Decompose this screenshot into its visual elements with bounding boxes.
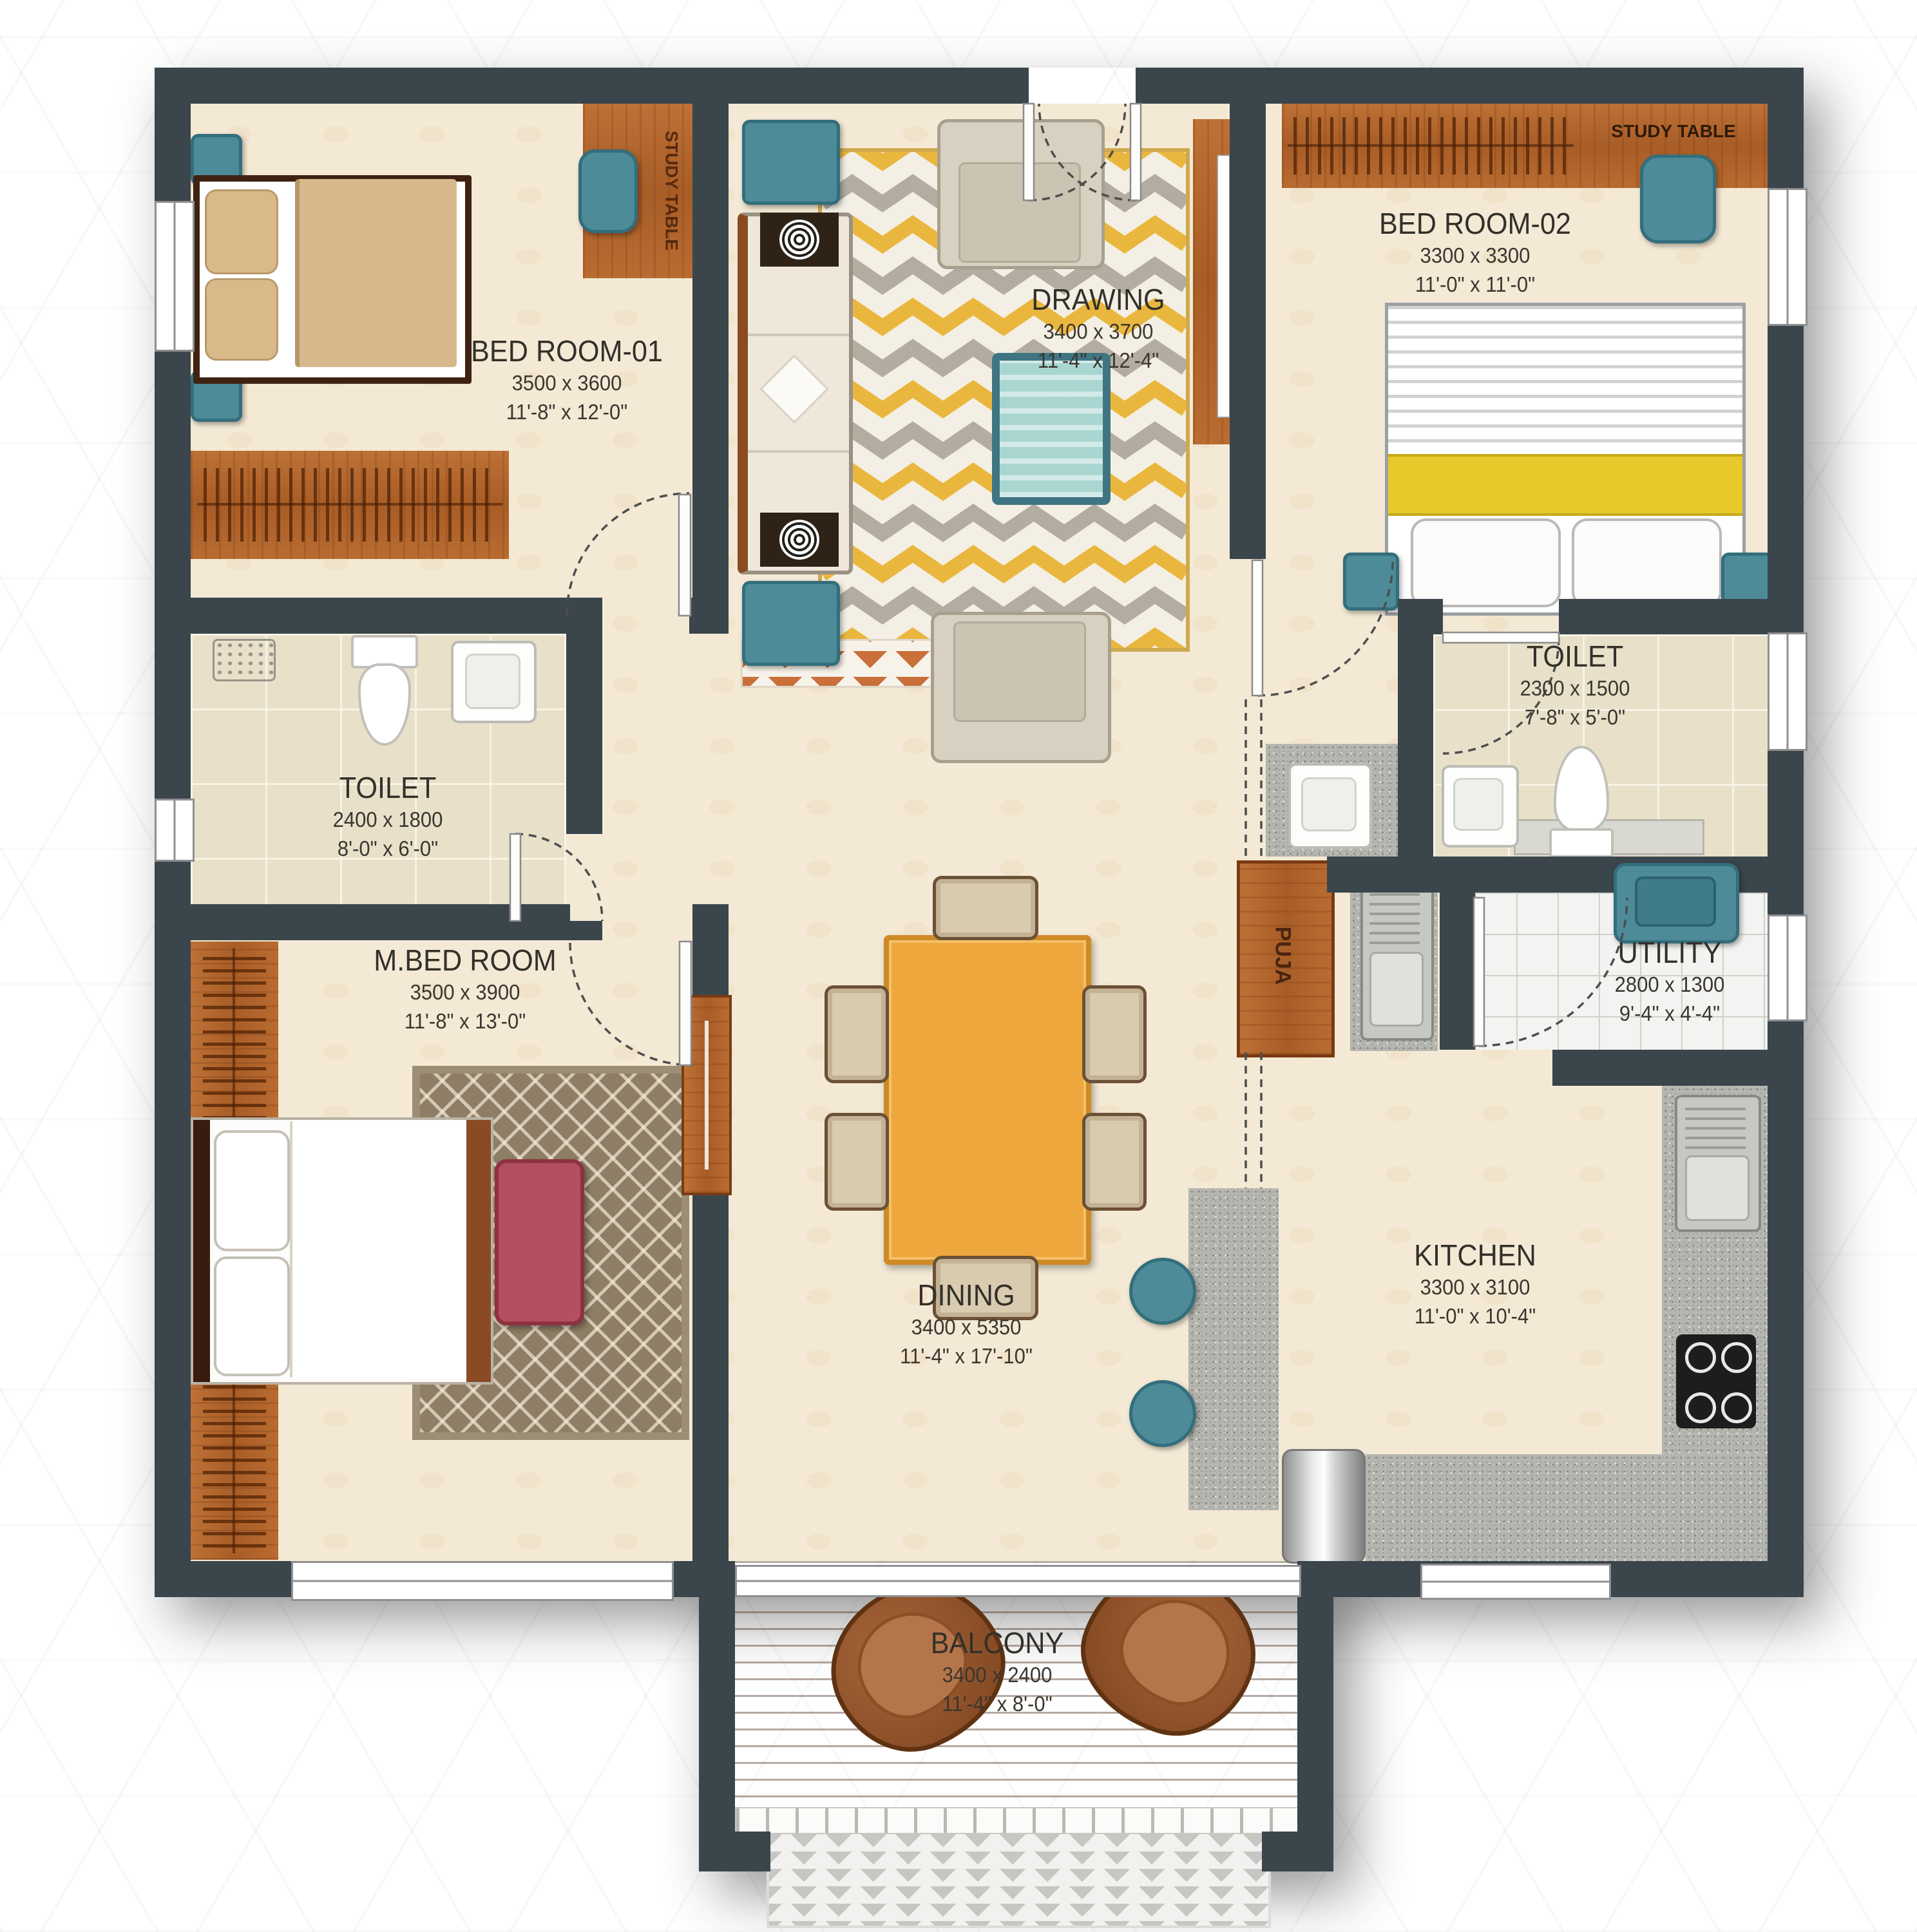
- burner-icon: [1721, 1392, 1752, 1423]
- room-label-dining: DINING 3400 x 5350 11'-4" x 17'-10": [900, 1278, 1033, 1370]
- headboard: [193, 1120, 210, 1382]
- water-cylinder: [1282, 1449, 1366, 1564]
- room-dim-mm: 2800 x 1300: [1615, 971, 1725, 999]
- room-name: UTILITY: [1615, 935, 1725, 971]
- window: [155, 799, 195, 862]
- room-dim-mm: 3400 x 5350: [900, 1313, 1033, 1342]
- sink-basin: [1453, 778, 1503, 831]
- study-table-label-bedroom2: STUDY TABLE: [1611, 121, 1735, 142]
- drawing-armchair-top: [937, 119, 1105, 269]
- wall-segment: [1230, 68, 1266, 559]
- room-name: DINING: [900, 1278, 1033, 1313]
- washing-machine: [1614, 863, 1739, 943]
- pillow: [205, 189, 278, 274]
- window: [1420, 1564, 1611, 1600]
- room-label-toilet1: TOILET 2400 x 1800 8'-0" x 6'-0": [333, 770, 443, 863]
- wall-segment: [566, 598, 602, 834]
- room-name: BED ROOM-02: [1379, 206, 1571, 241]
- kitchen-wash-sink: [1360, 873, 1434, 1041]
- room-dim-mm: 3400 x 3700: [1031, 317, 1165, 346]
- wash-niche-basin: [1288, 763, 1372, 849]
- machine-drum: [1635, 876, 1716, 927]
- sink-basin: [465, 654, 520, 709]
- room-dim-ft: 7'-8" x 5'-0": [1520, 703, 1630, 732]
- kitchen-sink: [1675, 1095, 1761, 1232]
- bedroom1-wardrobe: [191, 451, 509, 559]
- room-label-bedroom2: BED ROOM-02 3300 x 3300 11'-0" x 11'-0": [1379, 206, 1571, 299]
- pillow: [1572, 518, 1722, 607]
- shower-icon: [213, 639, 276, 681]
- yellow-throw: [1388, 454, 1742, 516]
- pillow: [214, 1130, 290, 1251]
- toilet2-sink: [1442, 765, 1519, 848]
- dining-chair: [933, 876, 1038, 940]
- dining-chair: [1082, 1113, 1147, 1211]
- room-dim-ft: 11'-0" x 10'-4": [1414, 1302, 1536, 1331]
- window: [1768, 188, 1807, 326]
- duvet: [290, 1121, 465, 1378]
- window: [1768, 914, 1807, 1021]
- pillow: [205, 278, 278, 361]
- burner-icon: [1685, 1342, 1716, 1373]
- wall-segment: [155, 68, 1029, 104]
- wall-segment: [1552, 1050, 1768, 1086]
- room-dim-mm: 2300 x 1500: [1520, 674, 1630, 703]
- room-dim-ft: 11'-4" x 8'-0": [931, 1690, 1064, 1719]
- drawing-ottoman-top: [742, 120, 840, 205]
- room-dim-mm: 3400 x 2400: [931, 1661, 1064, 1690]
- balcony-door-mat: [767, 1832, 1271, 1928]
- room-dim-mm: 3500 x 3600: [471, 369, 663, 398]
- burner-icon: [1685, 1392, 1716, 1423]
- wall-segment: [1559, 599, 1804, 634]
- room-label-mbedroom: M.BED ROOM 3500 x 3900 11'-8" x 13'-0": [374, 943, 556, 1036]
- kitchen-bottom-counter: [1366, 1454, 1768, 1561]
- drawing-coffee-table: [992, 353, 1111, 505]
- drainboard: [1685, 1104, 1746, 1149]
- toilet1-sink: [451, 641, 537, 723]
- footboard: [466, 1120, 491, 1382]
- bedroom1-study-chair: [578, 149, 638, 233]
- pillow: [1411, 518, 1561, 607]
- room-dim-ft: 11'-4" x 12'-4": [1031, 346, 1165, 375]
- pillow: [214, 1256, 290, 1376]
- room-name: DRAWING: [1031, 282, 1165, 317]
- tray-icon: [779, 220, 819, 260]
- drawing-side-table-top: [760, 213, 839, 267]
- dining-table: [884, 935, 1091, 1265]
- room-label-bedroom1: BED ROOM-01 3500 x 3600 11'-8" x 12'-0": [471, 334, 663, 426]
- room-name: M.BED ROOM: [374, 943, 556, 978]
- burner-icon: [1721, 1342, 1752, 1373]
- puja-label: PUJA: [1270, 927, 1295, 985]
- tv-icon: [1217, 155, 1230, 418]
- wall-segment: [699, 1561, 735, 1871]
- wall-segment: [155, 598, 567, 634]
- drawing-ottoman-bottom: [742, 581, 840, 666]
- sliding-door: [735, 1565, 1301, 1597]
- room-dim-ft: 11'-4" x 17'-10": [900, 1342, 1033, 1371]
- sink-basin: [1301, 777, 1357, 831]
- mbed-bed: [191, 1117, 493, 1385]
- room-dim-mm: 3500 x 3900: [374, 978, 556, 1007]
- room-name: BALCONY: [931, 1625, 1064, 1661]
- room-label-balcony: BALCONY 3400 x 2400 11'-4" x 8'-0": [931, 1625, 1064, 1718]
- room-label-kitchen: KITCHEN 3300 x 3100 11'-0" x 10'-4": [1414, 1238, 1536, 1331]
- wall-segment: [1440, 857, 1475, 1050]
- mbed-dresser: [682, 995, 732, 1195]
- room-dim-mm: 2400 x 1800: [333, 806, 443, 835]
- breakfast-counter: [1188, 1188, 1279, 1510]
- room-name: BED ROOM-01: [471, 334, 663, 369]
- sofa-cushion-line: [748, 334, 849, 336]
- room-dim-mm: 3300 x 3100: [1414, 1273, 1536, 1302]
- bedroom2-wardrobe: [1282, 104, 1579, 188]
- mbed-bench: [495, 1159, 584, 1325]
- bedroom1-bed: [193, 175, 472, 384]
- wall-segment: [155, 904, 570, 940]
- dresser-handle: [705, 1021, 709, 1169]
- wall-segment: [566, 921, 602, 940]
- wall-segment: [1398, 599, 1433, 857]
- sofa-cushion-line: [748, 450, 849, 453]
- window: [291, 1561, 674, 1601]
- toilet2-wc-tank: [1549, 828, 1614, 858]
- bedroom2-study-chair: [1640, 155, 1716, 243]
- sink-basin: [1369, 952, 1424, 1027]
- wall-segment: [735, 1832, 770, 1871]
- wall-segment: [692, 68, 729, 634]
- room-dim-mm: 3300 x 3300: [1379, 241, 1571, 270]
- study-table-label-bedroom1: STUDY TABLE: [662, 131, 682, 251]
- room-name: TOILET: [333, 770, 443, 806]
- balcony-rail: [735, 1807, 1300, 1834]
- dining-chair: [825, 985, 889, 1083]
- room-label-toilet2: TOILET 2300 x 1500 7'-8" x 5'-0": [1520, 639, 1630, 732]
- wall-segment: [1297, 1561, 1333, 1871]
- blanket: [295, 179, 457, 367]
- bar-stool: [1129, 1380, 1196, 1447]
- window: [155, 201, 195, 352]
- room-dim-ft: 11'-0" x 11'-0": [1379, 270, 1571, 299]
- drawing-armchair-bottom: [931, 612, 1111, 763]
- dining-chair: [1082, 985, 1147, 1083]
- chair-cushion: [1107, 1586, 1243, 1718]
- bar-stool: [1129, 1258, 1196, 1325]
- wall-segment: [1262, 1832, 1297, 1871]
- room-name: KITCHEN: [1414, 1238, 1536, 1273]
- sink-basin: [1685, 1155, 1750, 1221]
- sofa-pillow: [759, 354, 828, 423]
- wall-segment: [689, 598, 729, 634]
- armchair-seat: [958, 162, 1081, 263]
- striped-duvet: [1388, 306, 1742, 454]
- bedroom2-bed: [1385, 303, 1746, 616]
- room-label-drawing: DRAWING 3400 x 3700 11'-4" x 12'-4": [1031, 282, 1165, 375]
- floor-plan-page: { "plan": { "rooms": [ {"id":"bed_room_0…: [0, 0, 1917, 1932]
- drawing-side-table-bottom: [760, 513, 839, 567]
- room-dim-ft: 11'-8" x 12'-0": [471, 398, 663, 427]
- room-label-utility: UTILITY 2800 x 1300 9'-4" x 4'-4": [1615, 935, 1725, 1028]
- bedroom2-nightstand-left: [1343, 553, 1399, 611]
- room-name: TOILET: [1520, 639, 1630, 674]
- tray-icon: [779, 520, 819, 560]
- room-dim-ft: 9'-4" x 4'-4": [1615, 999, 1725, 1028]
- armchair-seat: [953, 621, 1086, 722]
- room-dim-ft: 11'-8" x 13'-0": [374, 1007, 556, 1036]
- dining-chair: [825, 1113, 889, 1211]
- stove-hob: [1676, 1334, 1756, 1428]
- window: [1768, 632, 1807, 751]
- room-dim-ft: 8'-0" x 6'-0": [333, 835, 443, 864]
